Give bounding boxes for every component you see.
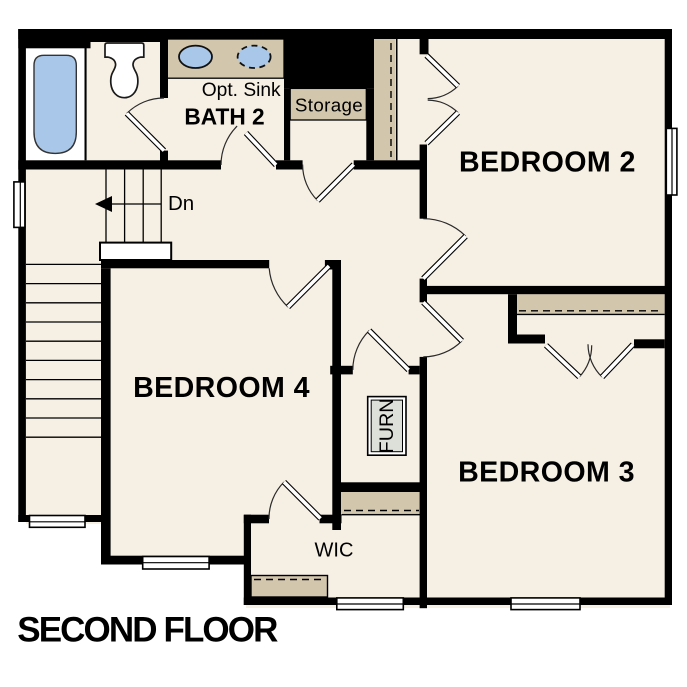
svg-text:BEDROOM 2: BEDROOM 2 (459, 146, 636, 178)
svg-text:Opt. Sink: Opt. Sink (202, 80, 281, 101)
svg-text:WIC: WIC (315, 540, 354, 562)
svg-text:BEDROOM 4: BEDROOM 4 (133, 372, 310, 404)
svg-text:Storage: Storage (295, 94, 363, 115)
svg-text:FURN: FURN (376, 398, 398, 453)
svg-text:Dn: Dn (168, 192, 194, 215)
svg-text:SECOND FLOOR: SECOND FLOOR (17, 611, 278, 650)
svg-text:BATH 2: BATH 2 (184, 103, 264, 129)
svg-text:BEDROOM 3: BEDROOM 3 (458, 457, 635, 489)
